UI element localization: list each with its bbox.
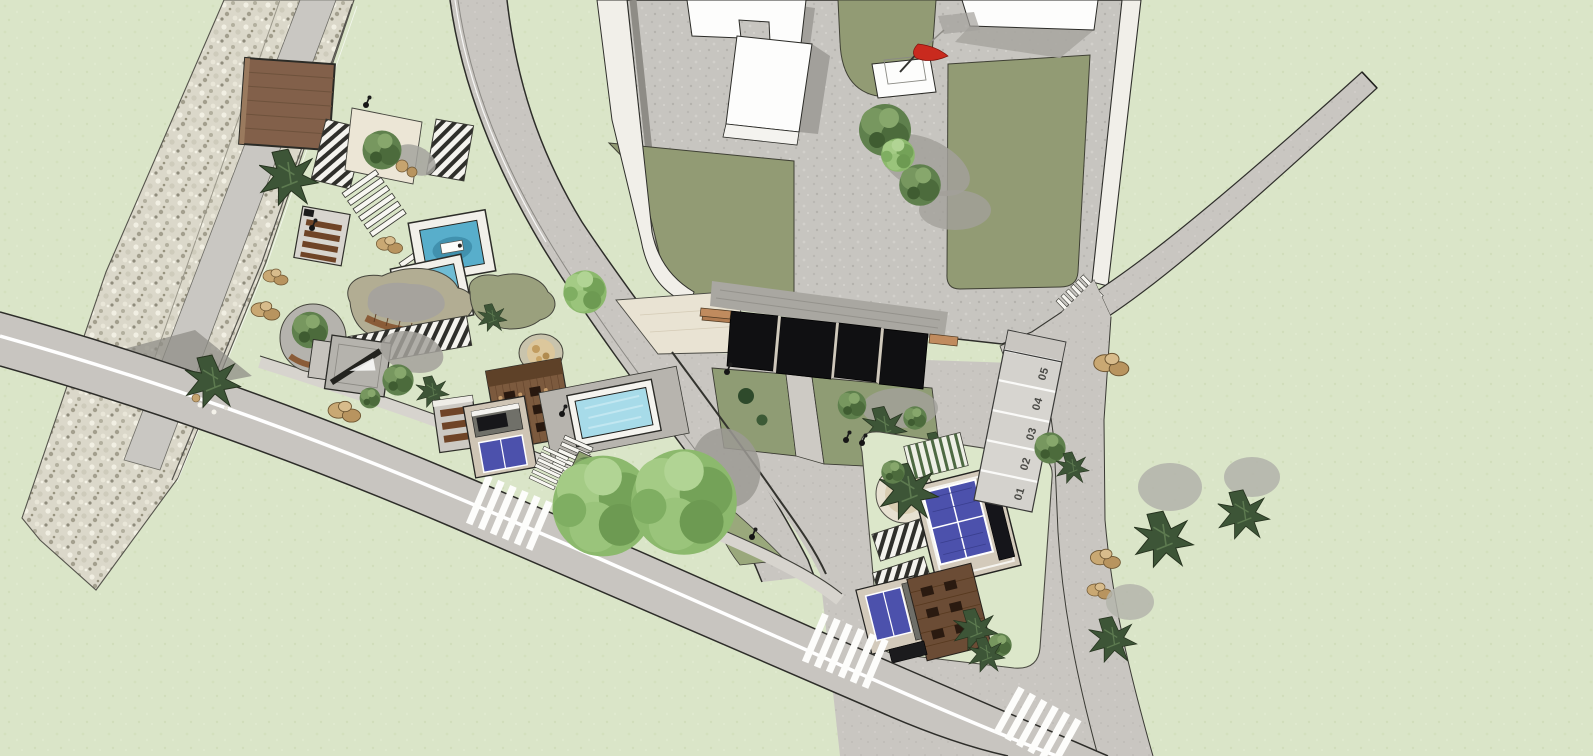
tree [838,391,867,420]
wood-deck-square [239,58,335,150]
solar-kiosk [463,396,537,478]
canopy-panel [776,317,836,379]
canopy-panel [727,311,778,371]
tree [363,131,402,170]
viewport-canvas[interactable]: 05 04 03 02 01 [0,0,1593,756]
canopy-panel [879,329,928,389]
seating-kiosk-nw [294,206,350,266]
tree [382,364,413,395]
tree [1034,432,1065,463]
canopy-panel [834,323,881,382]
tree [881,460,904,483]
tree [563,270,606,313]
white-building-2 [723,36,830,145]
tree [903,406,926,429]
tree [899,164,941,206]
tree [360,388,381,409]
site-plan-render: 05 04 03 02 01 [0,0,1593,756]
large-tree [631,449,737,555]
tree [881,138,915,172]
